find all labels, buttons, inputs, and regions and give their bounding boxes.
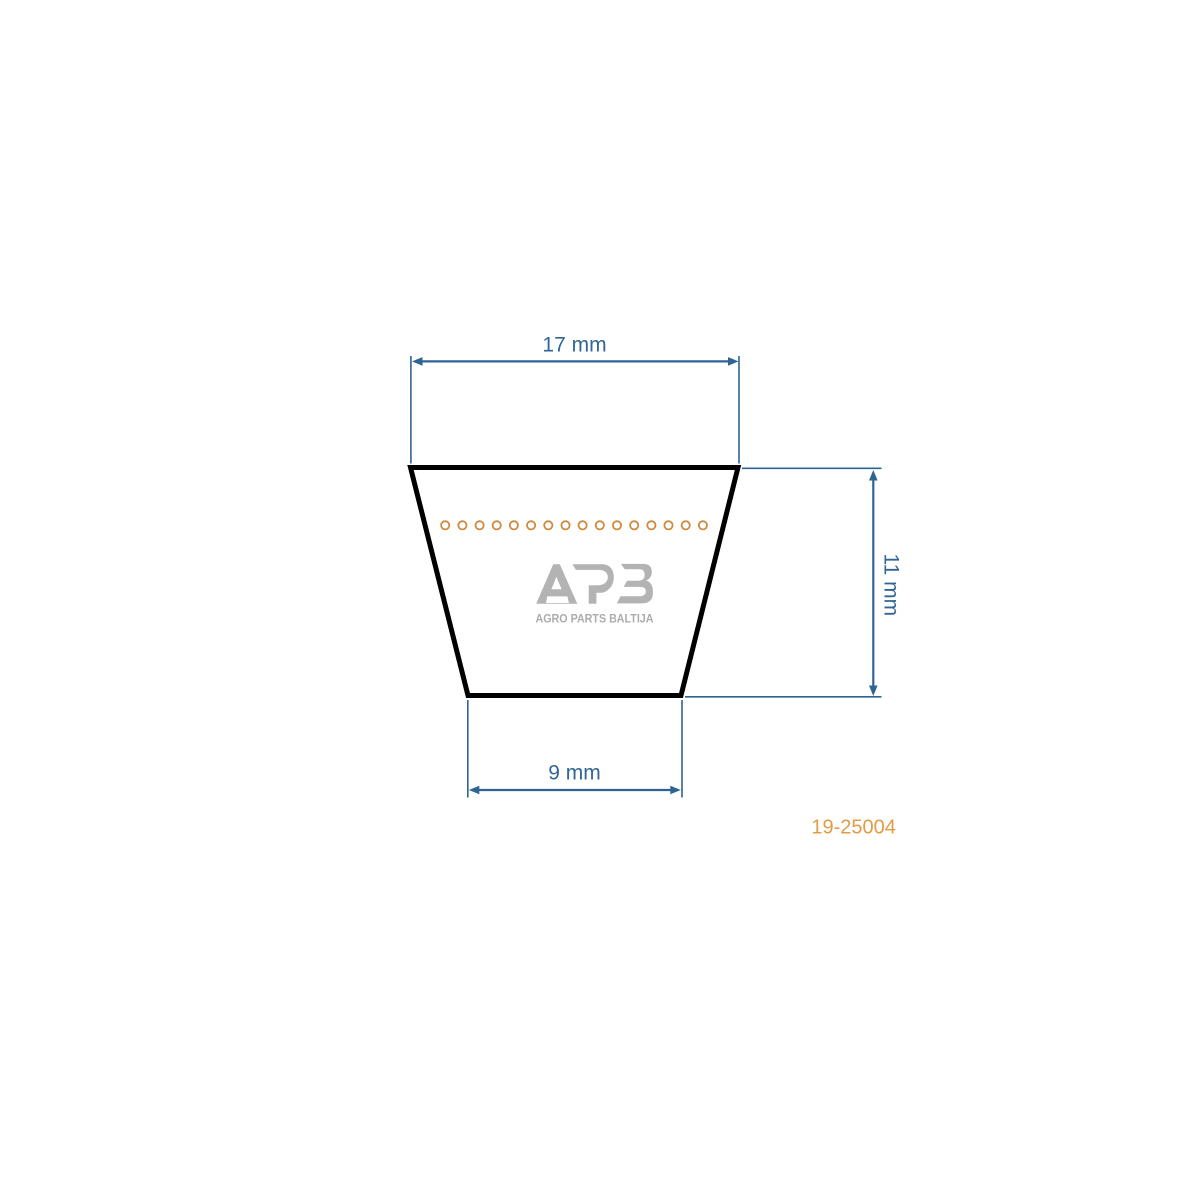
svg-text:11 mm: 11 mm — [879, 554, 902, 617]
svg-text:17 mm: 17 mm — [542, 334, 606, 357]
svg-text:AGRO PARTS BALTIJA: AGRO PARTS BALTIJA — [536, 612, 654, 626]
svg-text:9 mm: 9 mm — [548, 762, 601, 785]
svg-text:19-25004: 19-25004 — [811, 817, 896, 839]
